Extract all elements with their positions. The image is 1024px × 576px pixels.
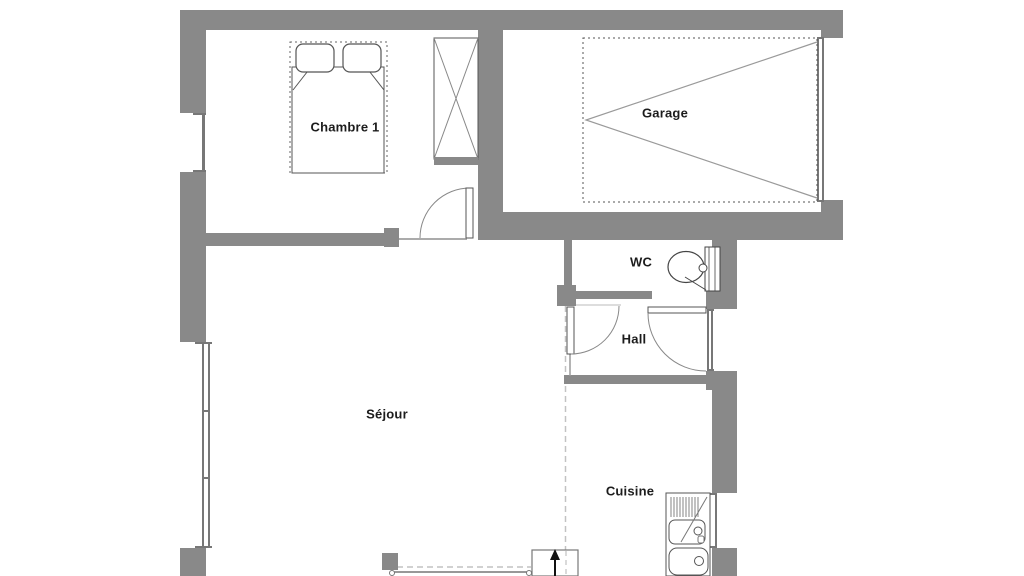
- toilet-icon: [668, 247, 720, 291]
- sejour-window: [195, 342, 212, 548]
- wardrobe-icon: [434, 38, 478, 165]
- room-label-cuisine: Cuisine: [606, 484, 654, 499]
- walls: [180, 10, 843, 576]
- chambre-door: [420, 188, 473, 238]
- sejour-hall-door: [567, 305, 621, 376]
- wc-door: [648, 307, 706, 371]
- bed-icon: [290, 42, 387, 173]
- hall-window: [707, 309, 714, 371]
- chambre-window: [193, 113, 206, 172]
- room-label-garage: Garage: [642, 106, 688, 121]
- room-label-hall: Hall: [622, 332, 647, 347]
- door-threshold: [399, 238, 467, 240]
- sliding-bay-window: [390, 569, 534, 576]
- garage-door-icon: [583, 37, 824, 202]
- room-label-sejour: Séjour: [366, 407, 408, 422]
- floor-plan: Chambre 1 Garage WC Hall Séjour Cuisine: [0, 0, 1024, 576]
- sink-icon: [666, 493, 710, 576]
- room-label-wc: WC: [630, 255, 652, 270]
- floor-plan-drawing: [0, 0, 1024, 576]
- room-separation-dashed-line: [397, 306, 566, 576]
- room-label-chambre1: Chambre 1: [311, 120, 380, 135]
